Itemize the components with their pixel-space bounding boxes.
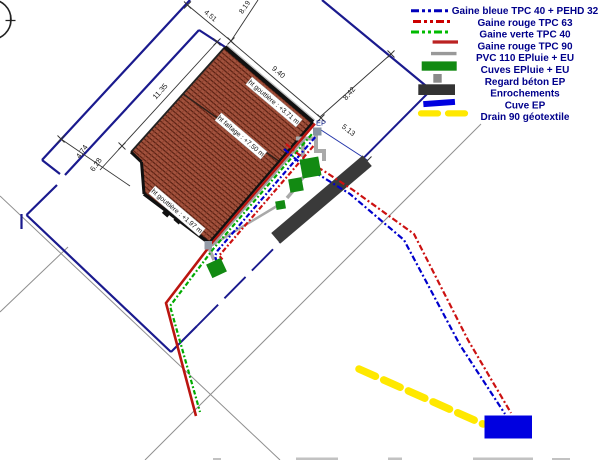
- svg-text:Gaine rouge TPC 63: Gaine rouge TPC 63: [477, 18, 572, 29]
- svg-text:Drain 90 géotextile: Drain 90 géotextile: [481, 112, 570, 123]
- svg-text:Gaine rouge TPC 90: Gaine rouge TPC 90: [477, 41, 572, 52]
- svg-text:PVC 110 EPluie + EU: PVC 110 EPluie + EU: [476, 53, 574, 64]
- svg-text:EP: EP: [316, 119, 326, 128]
- svg-text:Regard béton EP: Regard béton EP: [485, 77, 566, 88]
- svg-text:Enrochements: Enrochements: [490, 89, 560, 100]
- svg-text:Gaine verte TPC 40: Gaine verte TPC 40: [479, 30, 571, 41]
- svg-text:Cuves EPluie + EU: Cuves EPluie + EU: [481, 65, 570, 76]
- svg-text:Cuve EP: Cuve EP: [505, 100, 546, 111]
- svg-text:Gaine bleue TPC 40 + PEHD 32: Gaine bleue TPC 40 + PEHD 32: [452, 6, 599, 17]
